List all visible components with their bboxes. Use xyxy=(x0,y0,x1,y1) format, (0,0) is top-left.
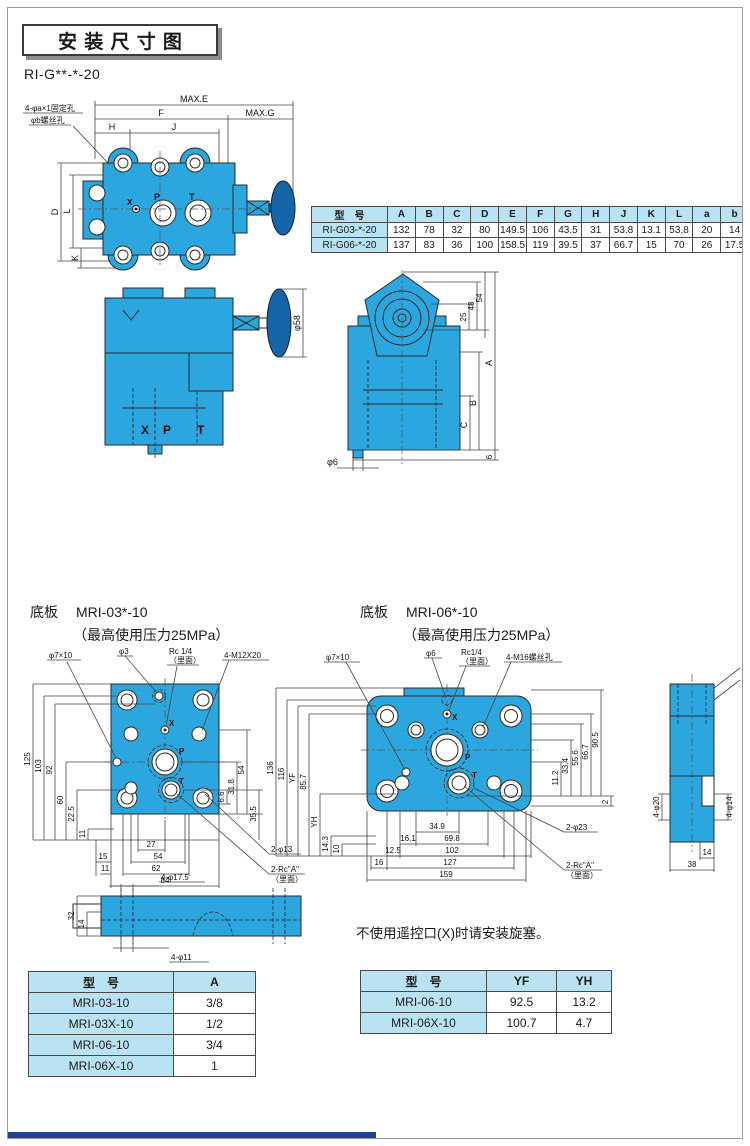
value-cell: 32 xyxy=(443,223,471,238)
value-cell: 4.7 xyxy=(557,1013,612,1034)
column-header: D xyxy=(471,207,499,223)
model-cell: MRI-06-10 xyxy=(29,1035,174,1056)
value-cell: 80 xyxy=(471,223,499,238)
value-cell: 31 xyxy=(582,223,610,238)
column-header: F xyxy=(526,207,554,223)
table-row: MRI-06-103/4 xyxy=(29,1035,256,1056)
column-header: K xyxy=(637,207,665,223)
column-header: C xyxy=(443,207,471,223)
column-header: J xyxy=(610,207,638,223)
port-label-t: T xyxy=(179,777,184,786)
section-label-prefix: 底板 xyxy=(30,604,58,620)
dim-label-6: 6 xyxy=(485,454,494,459)
dim-label-32: 32 xyxy=(67,911,76,920)
dim-label-38: 38 xyxy=(688,860,697,869)
dim-label: 16.1 xyxy=(400,834,416,843)
handwheel-plan xyxy=(269,181,295,235)
value-cell: 83 xyxy=(415,238,443,253)
section-pressure-note: （最高使用压力25MPa） xyxy=(73,625,229,645)
column-header: G xyxy=(554,207,582,223)
port-label-t: T xyxy=(189,192,195,202)
dim-label-k: K xyxy=(70,255,80,261)
callout-screw-holes: φb螺丝孔 xyxy=(31,115,65,125)
valve-body-side xyxy=(348,270,460,464)
value-cell: 78 xyxy=(415,223,443,238)
ri-g-side-view-drawing: 25 48 54 A B C 6 φ6 xyxy=(323,268,503,486)
table-row: MRI-06X-10100.74.7 xyxy=(361,1013,612,1034)
value-cell: 13.2 xyxy=(557,992,612,1013)
dim-label: 12.5 xyxy=(385,846,401,855)
column-header: B xyxy=(415,207,443,223)
value-cell: 1 xyxy=(174,1056,256,1077)
model-cell: RI-G03-*-20 xyxy=(312,223,388,238)
page-title: 安装尺寸图 xyxy=(22,24,218,56)
callout-4m12x20: 4-M12X20 xyxy=(224,651,261,660)
value-cell: 149.5 xyxy=(499,223,527,238)
header-row: 型 号A xyxy=(29,972,256,993)
value-cell: 13.1 xyxy=(637,223,665,238)
column-header: a xyxy=(693,207,721,223)
dim-label-14: 14 xyxy=(703,848,712,857)
dim-label: 14.3 xyxy=(321,836,330,852)
dim-label: 54 xyxy=(154,852,163,861)
port-label-x: X xyxy=(169,719,175,728)
dim-label: 6.6 xyxy=(217,791,226,803)
value-cell: 3/8 xyxy=(174,993,256,1014)
value-cell: 158.5 xyxy=(499,238,527,253)
column-header: E xyxy=(499,207,527,223)
dim-label-a: A xyxy=(484,360,494,366)
dim-label-c: C xyxy=(459,421,469,428)
plug-note: 不使用遥控口(X)时请安装旋塞。 xyxy=(356,922,550,942)
column-header: 型 号 xyxy=(312,207,388,223)
header-row: 型 号ABCDEFGHJKLab xyxy=(312,207,744,223)
table-row: RI-G06-*-201378336100158.511939.53766.71… xyxy=(312,238,744,253)
mri06-side-drawing: 4-φ20 4-φ14 14 38 xyxy=(616,656,743,888)
mri03-section-header: 底板MRI-03*-10 （最高使用压力25MPa） xyxy=(30,602,229,645)
callout-rc14-sub: （里面） xyxy=(169,656,201,665)
value-cell: 92.5 xyxy=(487,992,557,1013)
dim-label: 35.5 xyxy=(249,806,258,822)
callout-4m16: 4-M16螺丝孔 xyxy=(506,652,553,662)
port-label-t: T xyxy=(197,423,205,437)
column-header: 型 号 xyxy=(361,971,487,992)
value-cell: 106 xyxy=(526,223,554,238)
value-cell: 66.7 xyxy=(610,238,638,253)
dim-label-d: D xyxy=(50,208,60,215)
value-cell: 137 xyxy=(388,238,416,253)
column-header: A xyxy=(388,207,416,223)
port-label-t: T xyxy=(472,771,477,780)
value-cell: 17.5 xyxy=(721,238,743,253)
value-cell: 39.5 xyxy=(554,238,582,253)
callout-phi6: φ6 xyxy=(426,649,436,658)
valve-body-plan xyxy=(78,148,273,270)
port-label-x: X xyxy=(141,423,149,437)
dim-label: 125 xyxy=(23,752,32,766)
port-label-p: P xyxy=(163,423,171,437)
dim-label-h: H xyxy=(109,122,116,132)
mri-yf-yh-dimension-table: 型 号YFYH MRI-06-1092.513.2MRI-06X-10100.7… xyxy=(360,970,612,1034)
value-cell: 70 xyxy=(665,238,693,253)
value-cell: 100.7 xyxy=(487,1013,557,1034)
dim-label-4phi14: 4-φ14 xyxy=(725,796,734,818)
dim-label-phi6: φ6 xyxy=(327,457,338,467)
dim-label: 66.7 xyxy=(581,744,590,760)
dim-label: 16 xyxy=(375,858,384,867)
model-cell: MRI-03X-10 xyxy=(29,1014,174,1035)
dim-label-25: 25 xyxy=(459,312,468,321)
dim-label-14: 14 xyxy=(77,919,86,928)
dim-label-f: F xyxy=(158,108,164,118)
value-cell: 3/4 xyxy=(174,1035,256,1056)
port-label-p: P xyxy=(179,747,185,756)
value-cell: 53.8 xyxy=(610,223,638,238)
value-cell: 43.5 xyxy=(554,223,582,238)
dim-label: 116 xyxy=(277,767,286,780)
dim-label-l: L xyxy=(62,208,72,213)
dim-label-54: 54 xyxy=(475,293,484,302)
table-row: MRI-03X-101/2 xyxy=(29,1014,256,1035)
column-header: b xyxy=(721,207,743,223)
column-header: YF xyxy=(487,971,557,992)
dim-label: 55.6 xyxy=(571,750,580,766)
page-title-text: 安装尺寸图 xyxy=(51,27,189,54)
dim-label: 27 xyxy=(147,840,156,849)
header-row: 型 号YFYH xyxy=(361,971,612,992)
dim-label: 102 xyxy=(445,846,459,855)
callout-phi7x10: φ7×10 xyxy=(326,653,350,662)
dim-label: YH xyxy=(310,816,319,827)
table-row: MRI-03-103/8 xyxy=(29,993,256,1014)
column-header: YH xyxy=(557,971,612,992)
dim-label-max-g: MAX.G xyxy=(245,108,274,118)
callout-rc14: Rc 1/4 xyxy=(169,647,193,656)
dim-label: 11.2 xyxy=(551,770,560,786)
model-cell: MRI-06-10 xyxy=(361,992,487,1013)
value-cell: 14 xyxy=(721,223,743,238)
column-header: A xyxy=(174,972,256,993)
table-row: RI-G03-*-20132783280149.510643.53153.813… xyxy=(312,223,744,238)
value-cell: 36 xyxy=(443,238,471,253)
value-cell: 132 xyxy=(388,223,416,238)
dim-label: 31.8 xyxy=(227,779,236,795)
dim-label: 103 xyxy=(34,759,43,773)
value-cell: 37 xyxy=(582,238,610,253)
callout-phi3: φ3 xyxy=(119,647,129,656)
section-model: MRI-03*-10 xyxy=(76,604,148,620)
dim-label: 34.9 xyxy=(429,822,445,831)
dim-label: 22.5 xyxy=(67,806,76,822)
mri06-plan-drawing: X P T φ7×10 φ6 Rc1/4 （里面） 4-M16螺丝孔 2-φ23… xyxy=(266,644,628,902)
dim-label-max-e: MAX.E xyxy=(180,94,208,104)
value-cell: 53.8 xyxy=(665,223,693,238)
callout-2phi23: 2-φ23 xyxy=(566,823,588,832)
dim-label: 54 xyxy=(237,765,246,774)
callout-2rca: 2-Rc"A" xyxy=(566,861,594,870)
mri06-section-header: 底板MRI-06*-10 （最高使用压力25MPa） xyxy=(360,602,559,645)
series-label: RI-G**-*-20 xyxy=(24,66,100,82)
column-header: 型 号 xyxy=(29,972,174,993)
dim-label: 60 xyxy=(56,795,65,804)
dim-label-4phi11: 4-φ11 xyxy=(171,953,192,962)
port-label-x: X xyxy=(452,713,458,722)
model-cell: MRI-03-10 xyxy=(29,993,174,1014)
value-cell: 15 xyxy=(637,238,665,253)
dim-label: 33.4 xyxy=(561,758,570,774)
table-row: MRI-06X-101 xyxy=(29,1056,256,1077)
callout-rc14-sub: （里面） xyxy=(461,657,493,666)
port-label-x: X xyxy=(127,198,133,207)
section-model: MRI-06*-10 xyxy=(406,604,478,620)
model-cell: RI-G06-*-20 xyxy=(312,238,388,253)
dim-label: 10 xyxy=(332,844,341,853)
dim-label: 15 xyxy=(99,852,108,861)
value-cell: 26 xyxy=(693,238,721,253)
dim-label-phi58: φ58 xyxy=(292,315,302,331)
port-label-p: P xyxy=(465,753,471,762)
port-label-p: P xyxy=(154,192,160,202)
model-cell: MRI-06X-10 xyxy=(361,1013,487,1034)
page-border: 安装尺寸图 RI-G**-*-20 MAX.E xyxy=(7,7,743,1139)
section-pressure-note: （最高使用压力25MPa） xyxy=(403,625,559,645)
dim-label: 11 xyxy=(78,829,87,838)
mri-a-dimension-table: 型 号A MRI-03-103/8MRI-03X-101/2MRI-06-103… xyxy=(28,971,256,1077)
dim-label-b: B xyxy=(468,400,478,406)
ri-g-plan-view-drawing: MAX.E F MAX.G H J 4-φa×1固定孔 φb螺丝孔 D L K xyxy=(23,93,323,278)
ri-g-dimension-table: 型 号ABCDEFGHJKLab RI-G03-*-20132783280149… xyxy=(311,206,743,253)
table-row: MRI-06-1092.513.2 xyxy=(361,992,612,1013)
value-cell: 119 xyxy=(526,238,554,253)
column-header: H xyxy=(582,207,610,223)
dim-label: 2 xyxy=(601,799,610,804)
model-cell: MRI-06X-10 xyxy=(29,1056,174,1077)
callout-rc14: Rc1/4 xyxy=(461,648,482,657)
dim-label: 136 xyxy=(266,761,275,775)
value-cell: 20 xyxy=(693,223,721,238)
dim-label-4phi17-5: 4-φ17.5 xyxy=(161,873,189,882)
callout-phi7x10: φ7×10 xyxy=(49,651,73,660)
dim-label: 69.8 xyxy=(444,834,460,843)
ri-g-front-view-drawing: φ58 X P T xyxy=(93,268,328,480)
value-cell: 1/2 xyxy=(174,1014,256,1035)
dim-label-j: J xyxy=(172,122,177,132)
dim-label: 127 xyxy=(443,858,457,867)
callout-fixing-holes: 4-φa×1固定孔 xyxy=(25,103,75,113)
dim-label: YF xyxy=(288,773,297,783)
dim-label: 159 xyxy=(439,870,453,879)
footer-accent-bar xyxy=(8,1132,376,1139)
dim-label: 92 xyxy=(45,765,54,774)
column-header: L xyxy=(665,207,693,223)
callout-2rca-sub: （里面） xyxy=(566,871,598,880)
base-plate-side-body xyxy=(101,896,301,936)
handwheel-front xyxy=(233,289,291,357)
value-cell: 100 xyxy=(471,238,499,253)
dim-label: 90.5 xyxy=(591,732,600,748)
dim-label: 85.7 xyxy=(299,774,308,790)
section-label-prefix: 底板 xyxy=(360,604,388,620)
dim-label-4phi20: 4-φ20 xyxy=(652,796,661,818)
